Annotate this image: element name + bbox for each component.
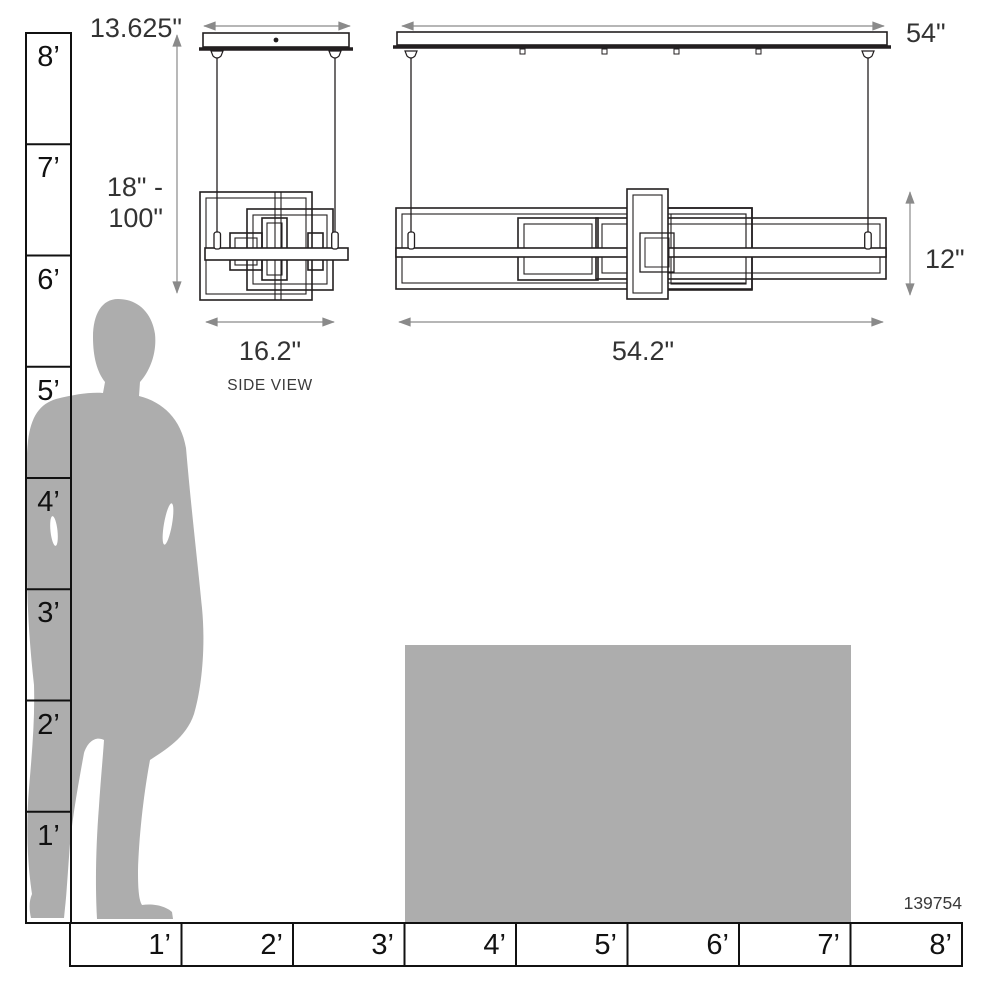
suspension-range-line2: 100" bbox=[88, 203, 163, 234]
side-canopy-width-label: 13.625" bbox=[58, 13, 182, 44]
table-silhouette bbox=[405, 645, 851, 923]
bottom-ruler-label-2ft: 2’ bbox=[182, 924, 293, 966]
front-fixture-height-label: 12" bbox=[925, 244, 965, 275]
side-cable-mounts bbox=[211, 51, 341, 58]
diagram-artwork bbox=[0, 0, 988, 990]
dimension-diagram: 13.625" 54" 18" - 100" 16.2" SIDE VIEW 5… bbox=[0, 0, 988, 990]
front-canopy-tabs bbox=[520, 49, 761, 54]
side-cable-gripper-left bbox=[214, 232, 221, 249]
suspension-range-line1: 18" - bbox=[88, 172, 163, 203]
front-fixture-width-label: 54.2" bbox=[400, 336, 886, 367]
left-ruler-label-1ft: 1’ bbox=[26, 820, 71, 853]
front-canopy bbox=[397, 32, 887, 45]
suspension-range-label: 18" - 100" bbox=[88, 172, 163, 234]
left-ruler-label-2ft: 2’ bbox=[26, 709, 71, 742]
side-canopy-screw bbox=[274, 38, 279, 43]
model-number: 139754 bbox=[860, 893, 962, 913]
left-ruler-label-4ft: 4’ bbox=[26, 486, 71, 519]
left-ruler-label-6ft: 6’ bbox=[26, 264, 71, 297]
side-fixture-width-label: 16.2" bbox=[200, 336, 340, 367]
front-cable-gripper-left bbox=[408, 232, 415, 249]
bottom-ruler-label-1ft: 1’ bbox=[70, 924, 181, 966]
left-ruler-label-8ft: 8’ bbox=[26, 41, 71, 74]
front-cable-gripper-right bbox=[865, 232, 872, 249]
front-cable-mounts bbox=[405, 51, 874, 58]
front-canopy-width-label: 54" bbox=[906, 18, 946, 49]
side-cable-gripper-right bbox=[332, 232, 339, 249]
bottom-ruler-label-7ft: 7’ bbox=[739, 924, 850, 966]
bottom-ruler-label-5ft: 5’ bbox=[516, 924, 627, 966]
side-light-bar bbox=[205, 248, 348, 260]
side-view-caption: SIDE VIEW bbox=[200, 377, 340, 395]
left-ruler-label-5ft: 5’ bbox=[26, 375, 71, 408]
left-ruler-label-3ft: 3’ bbox=[26, 597, 71, 630]
side-cables bbox=[217, 58, 335, 232]
left-ruler-label-7ft: 7’ bbox=[26, 152, 71, 185]
bottom-ruler-label-4ft: 4’ bbox=[405, 924, 516, 966]
bottom-ruler-label-6ft: 6’ bbox=[628, 924, 739, 966]
bottom-ruler-label-8ft: 8’ bbox=[851, 924, 962, 966]
front-view-drawing bbox=[393, 32, 891, 299]
side-view-drawing bbox=[199, 33, 353, 300]
bottom-ruler-label-3ft: 3’ bbox=[293, 924, 404, 966]
